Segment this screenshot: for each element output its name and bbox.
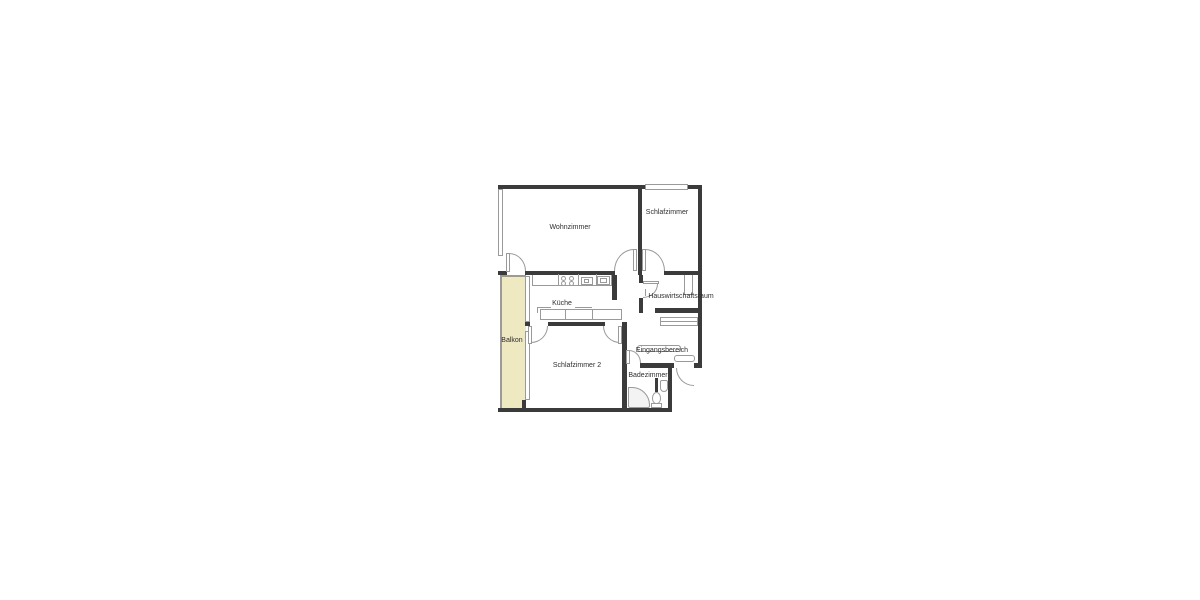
kitchen-leader-line: [537, 307, 551, 308]
window-living-left: [498, 189, 503, 256]
kitchen-counter-bottom: [540, 309, 622, 320]
wall-bedroom-bottom: [664, 271, 700, 275]
door-leaf-living: [633, 249, 637, 271]
counter-divider: [558, 274, 559, 286]
room-label-schlafzimmer2: Schlafzimmer 2: [553, 362, 601, 370]
oven-icon-inner: [584, 279, 589, 283]
wall-bedroom2-right: [622, 326, 627, 408]
wall-entrance-bottom-left: [640, 363, 674, 368]
door-arc-entry: [676, 368, 694, 386]
door-leaf-bedroom2-left: [528, 326, 532, 344]
utility-leader-tick: [645, 289, 646, 296]
counter-divider: [578, 274, 579, 286]
toilet-icon: [652, 392, 661, 404]
kitchen-leader-tick: [537, 307, 538, 313]
window-bedroom-top: [645, 184, 688, 190]
door-leaf-entry: [674, 355, 695, 362]
stove-burner-icon: [561, 281, 566, 286]
door-leaf-bedroom2-right: [618, 326, 622, 344]
wall-bathroom-right: [668, 368, 672, 408]
room-label-balkon: Balkon: [501, 337, 522, 345]
wall-entrance-bottom-right: [694, 363, 702, 368]
wall-kitchen-hall: [612, 275, 617, 300]
wall-bottom: [498, 408, 672, 412]
bathtub-icon: [628, 387, 650, 408]
door-leaf-bathroom: [626, 350, 630, 364]
counter-divider: [592, 309, 593, 320]
kitchen-leader-line: [575, 307, 592, 308]
room-label-hauswirtschaftsraum: Hauswirtschaftsraum: [648, 293, 713, 301]
counter-divider: [565, 309, 566, 320]
wall-balcony-stub: [522, 400, 526, 408]
bathroom-partition: [655, 378, 658, 392]
kitchen-sink-basin: [600, 278, 607, 283]
door-arc-bedroom2-left: [531, 326, 548, 343]
door-leaf-bedroom: [642, 249, 646, 271]
wall-bedroom2-top-b: [548, 322, 605, 326]
wall-living-bottom-b: [525, 271, 615, 275]
room-label-schlafzimmer: Schlafzimmer: [646, 209, 688, 217]
wall-utility-left-b: [639, 298, 643, 313]
window-kitchen-balcony: [525, 276, 530, 322]
wall-right: [698, 185, 702, 368]
room-label-badezimmer: Badezimmer: [628, 372, 667, 380]
door-arc-living: [614, 249, 634, 271]
balcony-railing-top: [500, 275, 526, 277]
door-leaf-utility: [643, 281, 659, 284]
wall-top-left: [498, 185, 645, 189]
room-label-kueche: Küche: [552, 300, 572, 308]
room-label-eingangsbereich: Eingangsbereich: [636, 347, 688, 355]
door-arc-bedroom: [645, 249, 665, 271]
room-label-wohnzimmer: Wohnzimmer: [549, 224, 590, 232]
floor-plan-canvas: Wohnzimmer Schlafzimmer Küche Hauswirtsc…: [0, 0, 1200, 600]
wall-utility-bottom: [655, 308, 700, 313]
entrance-closet-line: [661, 321, 697, 322]
bathroom-sink-icon: [660, 380, 668, 392]
stove-burner-icon: [569, 281, 574, 286]
utility-appliance: [684, 274, 693, 295]
door-leaf-balcony: [506, 253, 510, 272]
door-arc-balcony: [509, 253, 526, 271]
floor-plan: Wohnzimmer Schlafzimmer Küche Hauswirtsc…: [0, 0, 1200, 600]
